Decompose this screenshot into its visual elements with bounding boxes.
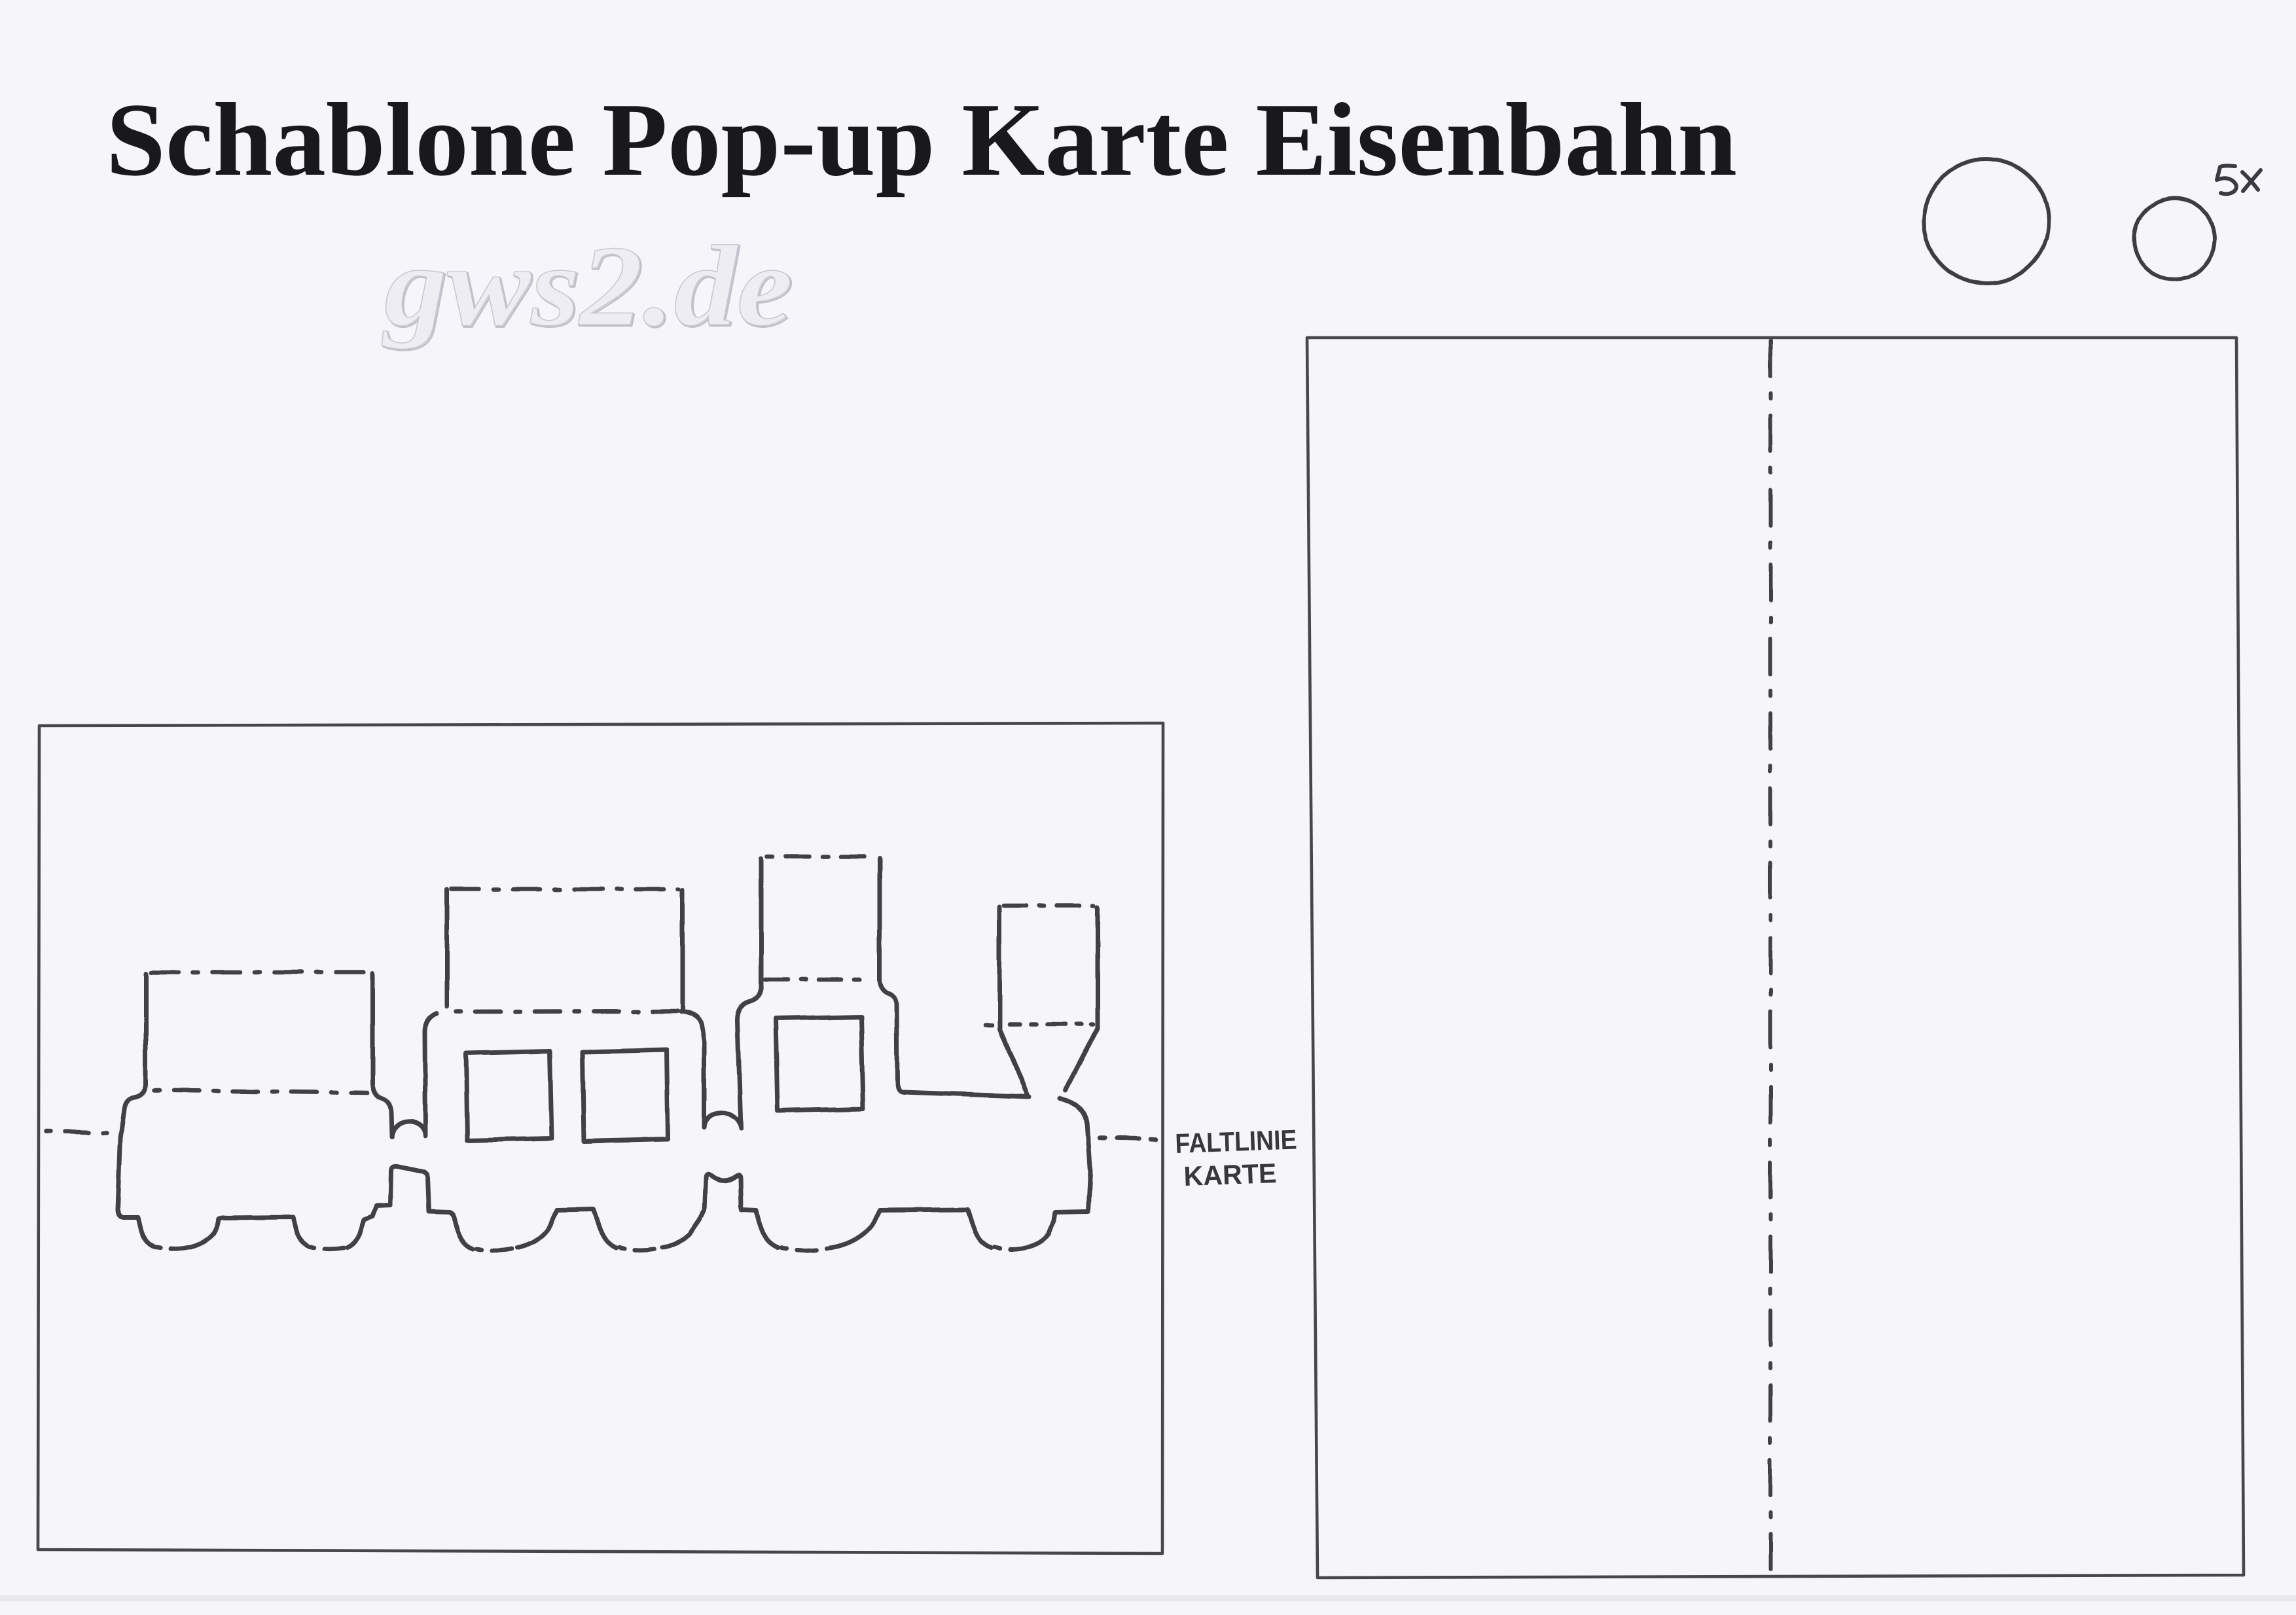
svg-text:gws2.de: gws2.de — [382, 222, 793, 350]
svg-text:KARTE: KARTE — [1183, 1158, 1278, 1192]
svg-text:FALTLINIE: FALTLINIE — [1175, 1124, 1298, 1159]
svg-text:Schablone Pop-up Karte Eisenba: Schablone Pop-up Karte Eisenbahn — [106, 81, 1737, 198]
